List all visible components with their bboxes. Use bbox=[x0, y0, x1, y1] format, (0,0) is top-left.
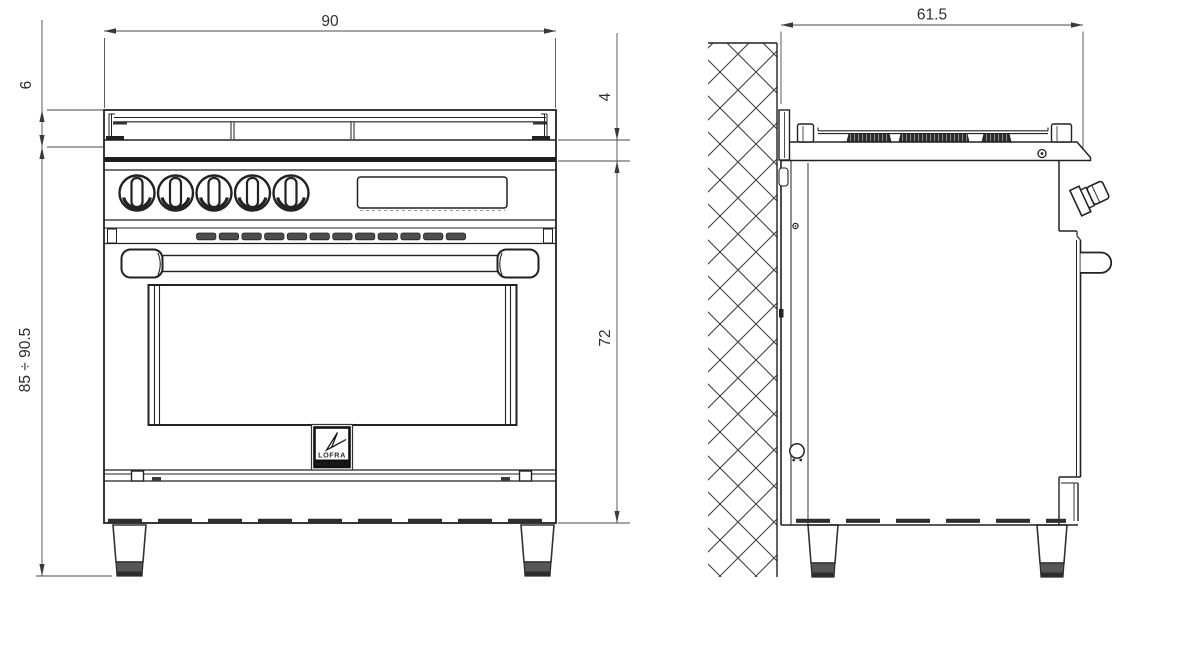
wall-section bbox=[708, 43, 777, 577]
vent-slot bbox=[378, 233, 397, 240]
oven-display-panel bbox=[358, 177, 508, 208]
door-handle-side bbox=[1081, 253, 1112, 273]
vent-slot bbox=[446, 233, 465, 240]
vent-slot bbox=[310, 233, 329, 240]
vent-slot bbox=[242, 233, 261, 240]
dimension-overall-width bbox=[104, 28, 556, 108]
vent-slot bbox=[401, 233, 420, 240]
installation-drawing-canvas: 90 6 85 ÷ 90.5 4 72 bbox=[0, 0, 1177, 654]
dimension-left-heights bbox=[36, 20, 112, 576]
brand-logo: LOFRA MADE IN ITALY bbox=[312, 425, 353, 471]
burner-cap bbox=[982, 134, 1011, 142]
burner-knob-3 bbox=[197, 176, 232, 211]
burner-knob-5 bbox=[274, 176, 309, 211]
dim-label-depth: 61.5 bbox=[917, 7, 947, 24]
vent-slot bbox=[355, 233, 374, 240]
front-left-leg bbox=[113, 525, 146, 576]
burner-knob-2 bbox=[158, 176, 193, 211]
gas-inlet bbox=[790, 444, 804, 461]
vent-slot bbox=[219, 233, 238, 240]
burner-knob-1 bbox=[120, 176, 155, 211]
dim-label-overall-height: 85 ÷ 90.5 bbox=[17, 328, 34, 393]
dim-label-grate-height: 6 bbox=[18, 81, 35, 90]
range-technical-drawing: 90 6 85 ÷ 90.5 4 72 bbox=[0, 0, 1177, 654]
dimension-right-heights bbox=[558, 33, 630, 523]
logo-tagline-text: MADE IN ITALY bbox=[315, 461, 349, 466]
burner-knob-4 bbox=[235, 176, 270, 211]
front-right-leg bbox=[521, 525, 554, 576]
dim-label-worktop-edge: 4 bbox=[597, 92, 614, 101]
dim-label-width: 90 bbox=[321, 13, 339, 30]
vent-slot bbox=[424, 233, 443, 240]
front-view: 90 6 85 ÷ 90.5 4 72 bbox=[17, 13, 630, 576]
vent-slot bbox=[197, 233, 216, 240]
side-front-leg bbox=[1037, 525, 1067, 577]
burner-knob-side bbox=[1070, 177, 1112, 216]
side-back-leg bbox=[808, 525, 838, 577]
hob-side-profile bbox=[798, 124, 1072, 142]
vent-slot bbox=[287, 233, 306, 240]
vent-slot bbox=[265, 233, 284, 240]
side-view: 61.5 bbox=[708, 7, 1112, 578]
logo-brand-text: LOFRA bbox=[318, 451, 346, 460]
dim-label-body-height: 72 bbox=[597, 329, 614, 346]
burner-cap bbox=[847, 134, 891, 142]
vent-slot bbox=[333, 233, 352, 240]
burner-cap bbox=[899, 134, 969, 142]
range-body-side bbox=[779, 161, 1081, 526]
dimension-depth bbox=[781, 22, 1083, 151]
backguard-lip bbox=[779, 110, 798, 229]
worktop-side-profile bbox=[781, 142, 1091, 161]
